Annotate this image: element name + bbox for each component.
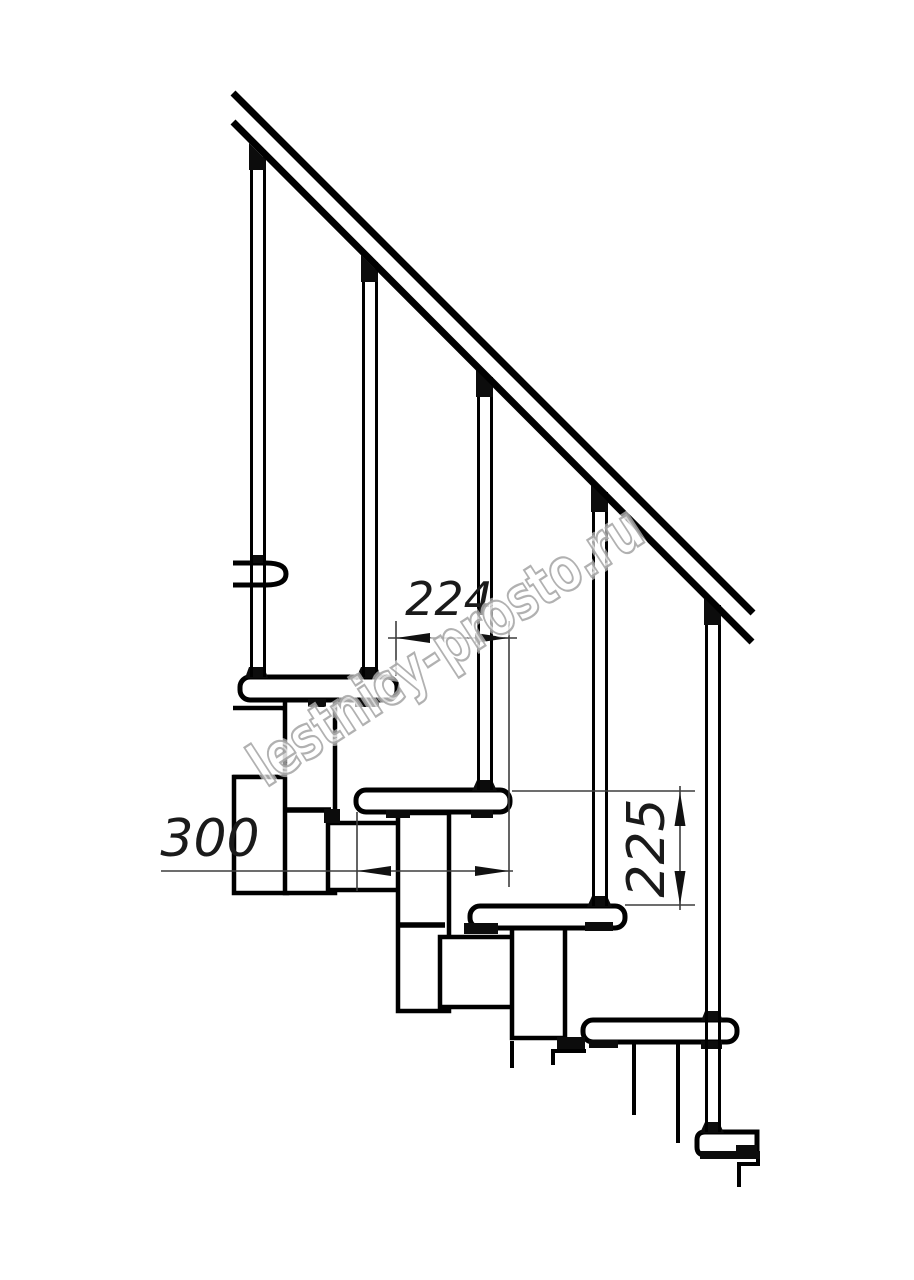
stair-drawing-page: 224 300 225 lestnicy-prosto.ru lestnicy-… (0, 0, 914, 1280)
stair-drawing: 224 300 225 lestnicy-prosto.ru lestnicy-… (0, 0, 914, 1280)
module-joint (557, 1037, 585, 1049)
landing-tread-fragment (233, 563, 286, 585)
tread-foot (585, 922, 613, 931)
module-joint (324, 809, 340, 823)
dimension-riser-height-label: 225 (617, 798, 677, 897)
tread (583, 1020, 737, 1042)
tread-foot (471, 810, 493, 818)
stringer-module (328, 823, 403, 890)
tread-cut-underline (700, 1151, 760, 1159)
stringer-module (512, 928, 565, 1038)
tread-foot (386, 810, 410, 818)
dimension-tread-depth-label: 300 (160, 809, 259, 869)
tread (356, 790, 510, 812)
module-joint (464, 923, 498, 934)
stringer-module (440, 937, 518, 1007)
tread-foot (589, 1040, 618, 1048)
